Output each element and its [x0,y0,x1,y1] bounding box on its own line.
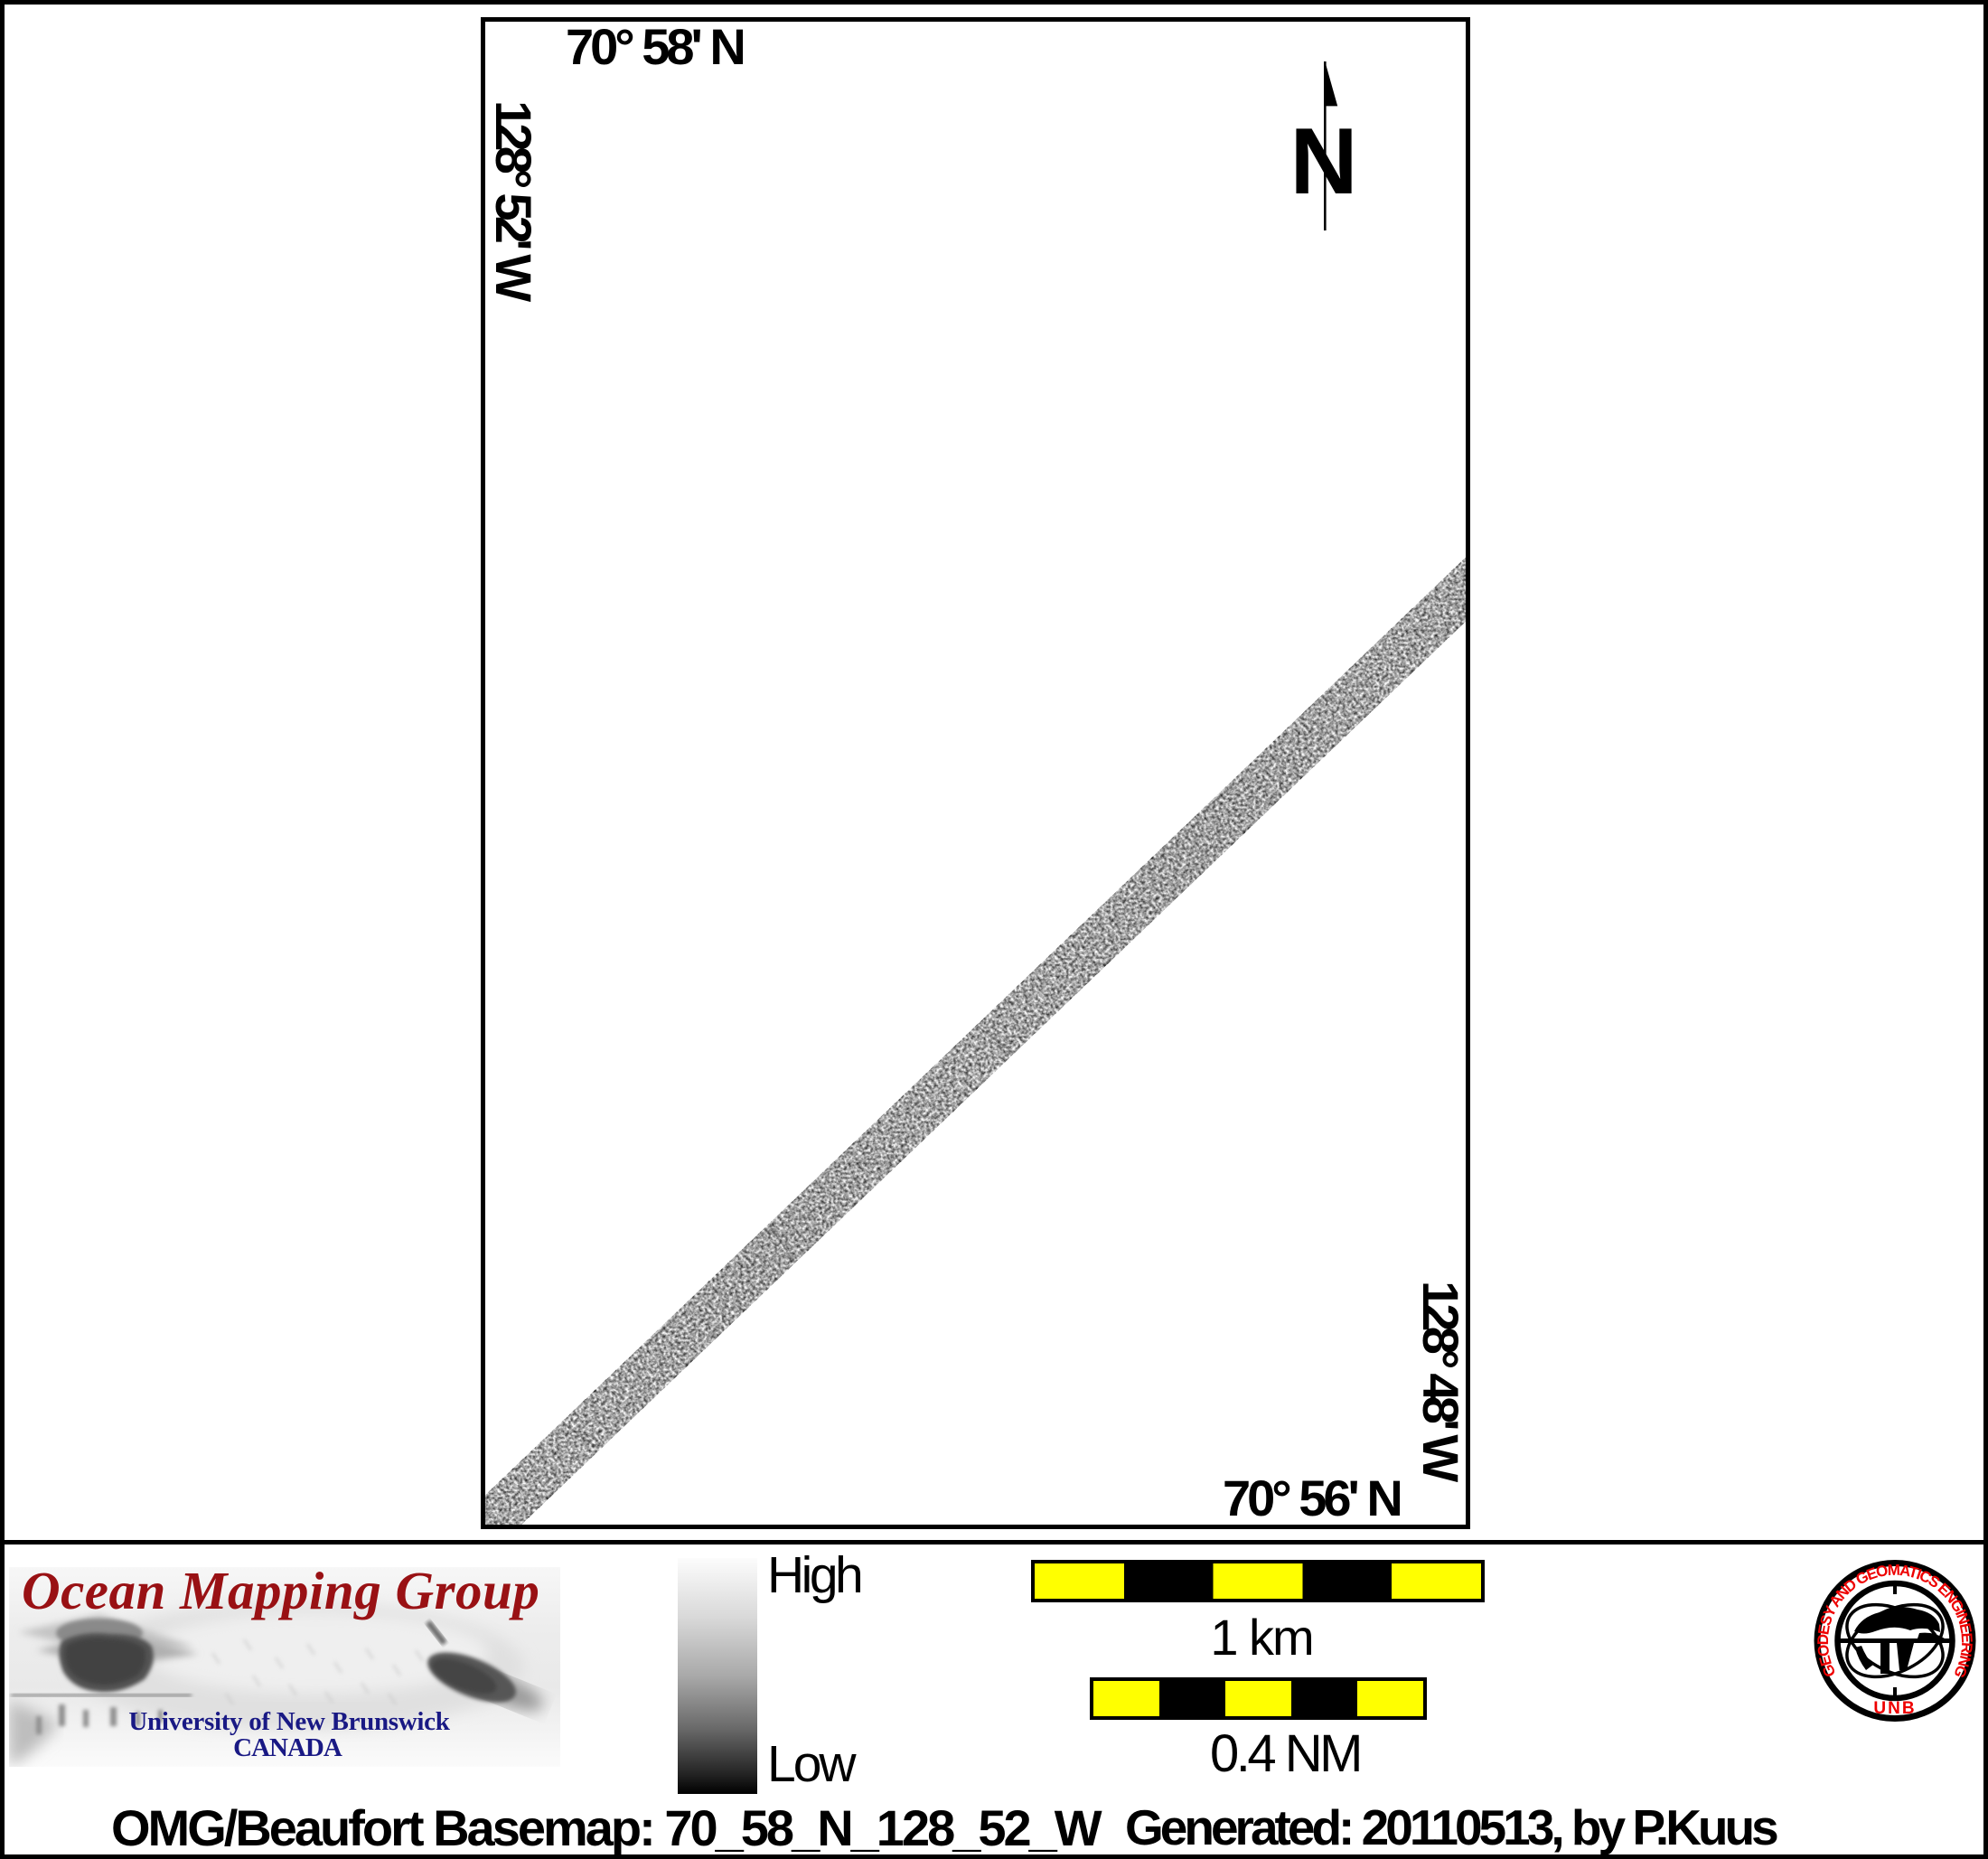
svg-text:N: N [1289,109,1357,214]
svg-text:UNB: UNB [1873,1699,1916,1718]
